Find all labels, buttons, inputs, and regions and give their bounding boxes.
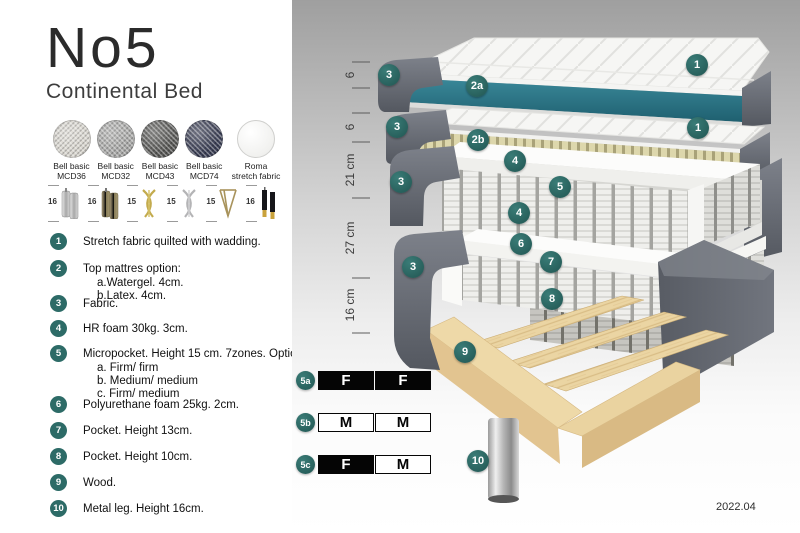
- tick: [167, 221, 178, 222]
- item-text: Pocket. Height 10cm.: [83, 451, 192, 463]
- tick: [167, 185, 178, 186]
- list-item: 10Metal leg. Height 16cm.: [50, 500, 204, 517]
- leg-option[interactable]: 15: [127, 184, 161, 222]
- firmness-badge: 5a: [296, 371, 315, 390]
- badge-micropocket[interactable]: 5: [549, 176, 571, 198]
- version-date: 2022.04: [716, 501, 756, 513]
- item-text: Wood.: [83, 477, 116, 489]
- firmness-cell[interactable]: F: [318, 371, 374, 390]
- badge-stretch-1-mid[interactable]: 1: [687, 117, 709, 139]
- fabric-code: MCD74: [190, 171, 219, 181]
- tick: [246, 221, 257, 222]
- list-item: 1Stretch fabric quilted with wadding.: [50, 233, 261, 250]
- layer-base-box: [394, 229, 774, 503]
- badge-pocket-13[interactable]: 7: [540, 251, 562, 273]
- leg-height: 16: [88, 197, 97, 206]
- info-panel: No5 Continental Bed Bell basicMCD36 Bell…: [0, 0, 292, 533]
- list-item: 4HR foam 30kg. 3cm.: [50, 320, 188, 337]
- item-number-badge: 7: [50, 422, 67, 439]
- firmness-cell[interactable]: F: [375, 371, 431, 390]
- item-text: Micropocket. Height 15 cm. 7zones. Optio…: [83, 348, 306, 360]
- firmness-row-5a: 5a F F: [296, 371, 431, 390]
- fabric-code: MCD43: [146, 171, 175, 181]
- badge-pufoam[interactable]: 6: [510, 233, 532, 255]
- badge-stretch-1-top[interactable]: 1: [686, 54, 708, 76]
- leg-height: 16: [48, 197, 57, 206]
- fabric-swatch-circle[interactable]: [53, 120, 91, 158]
- list-item: 6Polyurethane foam 25kg. 2cm.: [50, 396, 239, 413]
- badge-fabric-base[interactable]: 3: [402, 256, 424, 278]
- fabric-name: Bell basic: [142, 161, 178, 171]
- taper-black-gold-leg-icon: [258, 187, 280, 224]
- measure-label-basebox: 27 cm: [343, 211, 357, 265]
- firmness-row-5b: 5b M M: [296, 413, 431, 432]
- item-number-badge: 6: [50, 396, 67, 413]
- item-text: Top mattres option:: [83, 263, 181, 275]
- fabric-option[interactable]: Bell basicMCD32: [94, 120, 137, 181]
- leg-option[interactable]: 15: [167, 184, 201, 222]
- leg-option[interactable]: 16: [88, 184, 122, 222]
- item-text: Fabric.: [83, 298, 118, 310]
- tick: [48, 185, 59, 186]
- fabric-option[interactable]: Romastretch fabric: [227, 120, 285, 181]
- fabric-swatch-circle[interactable]: [185, 120, 223, 158]
- leg-height: 15: [127, 197, 136, 206]
- item-number-badge: 4: [50, 320, 67, 337]
- fabric-swatch-circle[interactable]: [141, 120, 179, 158]
- badge-pocket-10[interactable]: 8: [541, 288, 563, 310]
- fabric-swatch-circle[interactable]: [237, 120, 275, 158]
- item-subtext: b. Medium/ medium: [97, 375, 306, 388]
- list-item: 3Fabric.: [50, 295, 118, 312]
- badge-hrfoam-top[interactable]: 4: [504, 150, 526, 172]
- fabric-name: Bell basic: [98, 161, 134, 171]
- list-item: 9Wood.: [50, 474, 116, 491]
- diagram-panel: 6 6 21 cm 27 cm 16 cm 3 2a 1 3 2b 1 4 5 …: [292, 0, 800, 533]
- brand-block: No5 Continental Bed: [46, 18, 203, 104]
- firmness-badge: 5b: [296, 413, 315, 432]
- list-item: 8Pocket. Height 10cm.: [50, 448, 192, 465]
- leg-height: 15: [206, 197, 215, 206]
- badge-wood[interactable]: 9: [454, 341, 476, 363]
- leg-height: 16: [246, 197, 255, 206]
- badge-watergel-2a[interactable]: 2a: [466, 75, 488, 97]
- fabric-code: stretch fabric: [232, 171, 281, 181]
- firmness-badge: 5c: [296, 455, 315, 474]
- list-item: 5Micropocket. Height 15 cm. 7zones. Opti…: [50, 345, 306, 401]
- item-number-badge: 8: [50, 448, 67, 465]
- leg-option[interactable]: 16: [246, 184, 280, 222]
- tick: [48, 221, 59, 222]
- page: No5 Continental Bed Bell basicMCD36 Bell…: [0, 0, 800, 533]
- item-number-badge: 10: [50, 500, 67, 517]
- item-text: Pocket. Height 13cm.: [83, 425, 192, 437]
- item-subtext: a.Watergel. 4cm.: [97, 277, 184, 290]
- fabric-option[interactable]: Bell basicMCD43: [139, 120, 182, 181]
- item-number-badge: 2: [50, 260, 67, 277]
- tick: [206, 221, 217, 222]
- twist-silver-leg-icon: [179, 187, 201, 224]
- badge-hrfoam-bottom[interactable]: 4: [508, 202, 530, 224]
- badge-fabric-low[interactable]: 3: [390, 171, 412, 193]
- firmness-cell[interactable]: M: [375, 413, 431, 432]
- firmness-row-5c: 5c F M: [296, 455, 431, 474]
- item-text: Polyurethane foam 25kg. 2cm.: [83, 399, 239, 411]
- leg-option[interactable]: 16: [48, 184, 82, 222]
- fabric-swatch-circle[interactable]: [97, 120, 135, 158]
- badge-fabric-top[interactable]: 3: [378, 64, 400, 86]
- badge-fabric-mid[interactable]: 3: [386, 116, 408, 138]
- leg-height: 15: [167, 197, 176, 206]
- item-number-badge: 3: [50, 295, 67, 312]
- hairpin-gold-leg-icon: [218, 187, 240, 224]
- fabric-swatches: Bell basicMCD36 Bell basicMCD32 Bell bas…: [50, 120, 285, 181]
- item-text: HR foam 30kg. 3cm.: [83, 323, 188, 335]
- list-item: 7Pocket. Height 13cm.: [50, 422, 192, 439]
- item-text: Metal leg. Height 16cm.: [83, 503, 204, 515]
- product-subtitle: Continental Bed: [46, 80, 203, 104]
- item-text: Stretch fabric quilted with wadding.: [83, 236, 261, 248]
- cylinder-silver-leg-icon: [60, 187, 82, 224]
- firmness-cell[interactable]: F: [318, 455, 374, 474]
- tick: [127, 185, 138, 186]
- tick: [88, 221, 99, 222]
- fabric-code: MCD36: [57, 171, 86, 181]
- fabric-option[interactable]: Bell basicMCD36: [50, 120, 93, 181]
- measure-label-micropocket: 21 cm: [343, 143, 357, 197]
- item-number-badge: 1: [50, 233, 67, 250]
- fabric-name: Bell basic: [186, 161, 222, 171]
- leg-options: 16 16 15: [48, 184, 280, 222]
- leg-option[interactable]: 15: [206, 184, 240, 222]
- cylinder-bronze-leg-icon: [100, 187, 122, 224]
- tick: [127, 221, 138, 222]
- fabric-code: MCD32: [101, 171, 130, 181]
- tick: [88, 185, 99, 186]
- fabric-name: Bell basic: [53, 161, 89, 171]
- fabric-name: Roma: [245, 161, 268, 171]
- badge-latex-2b[interactable]: 2b: [467, 129, 489, 151]
- firmness-cell[interactable]: M: [318, 413, 374, 432]
- model-title: No5: [46, 18, 203, 78]
- measure-label-topper: 6: [343, 48, 357, 102]
- item-number-badge: 5: [50, 345, 67, 362]
- firmness-cell[interactable]: M: [375, 455, 431, 474]
- twist-gold-leg-icon: [139, 187, 161, 224]
- fabric-option[interactable]: Bell basicMCD74: [183, 120, 226, 181]
- badge-metal-leg[interactable]: 10: [467, 450, 489, 472]
- tick: [206, 185, 217, 186]
- item-number-badge: 9: [50, 474, 67, 491]
- tick: [246, 185, 257, 186]
- item-subtext: a. Firm/ firm: [97, 362, 306, 375]
- measure-label-legheight: 16 cm: [343, 278, 357, 332]
